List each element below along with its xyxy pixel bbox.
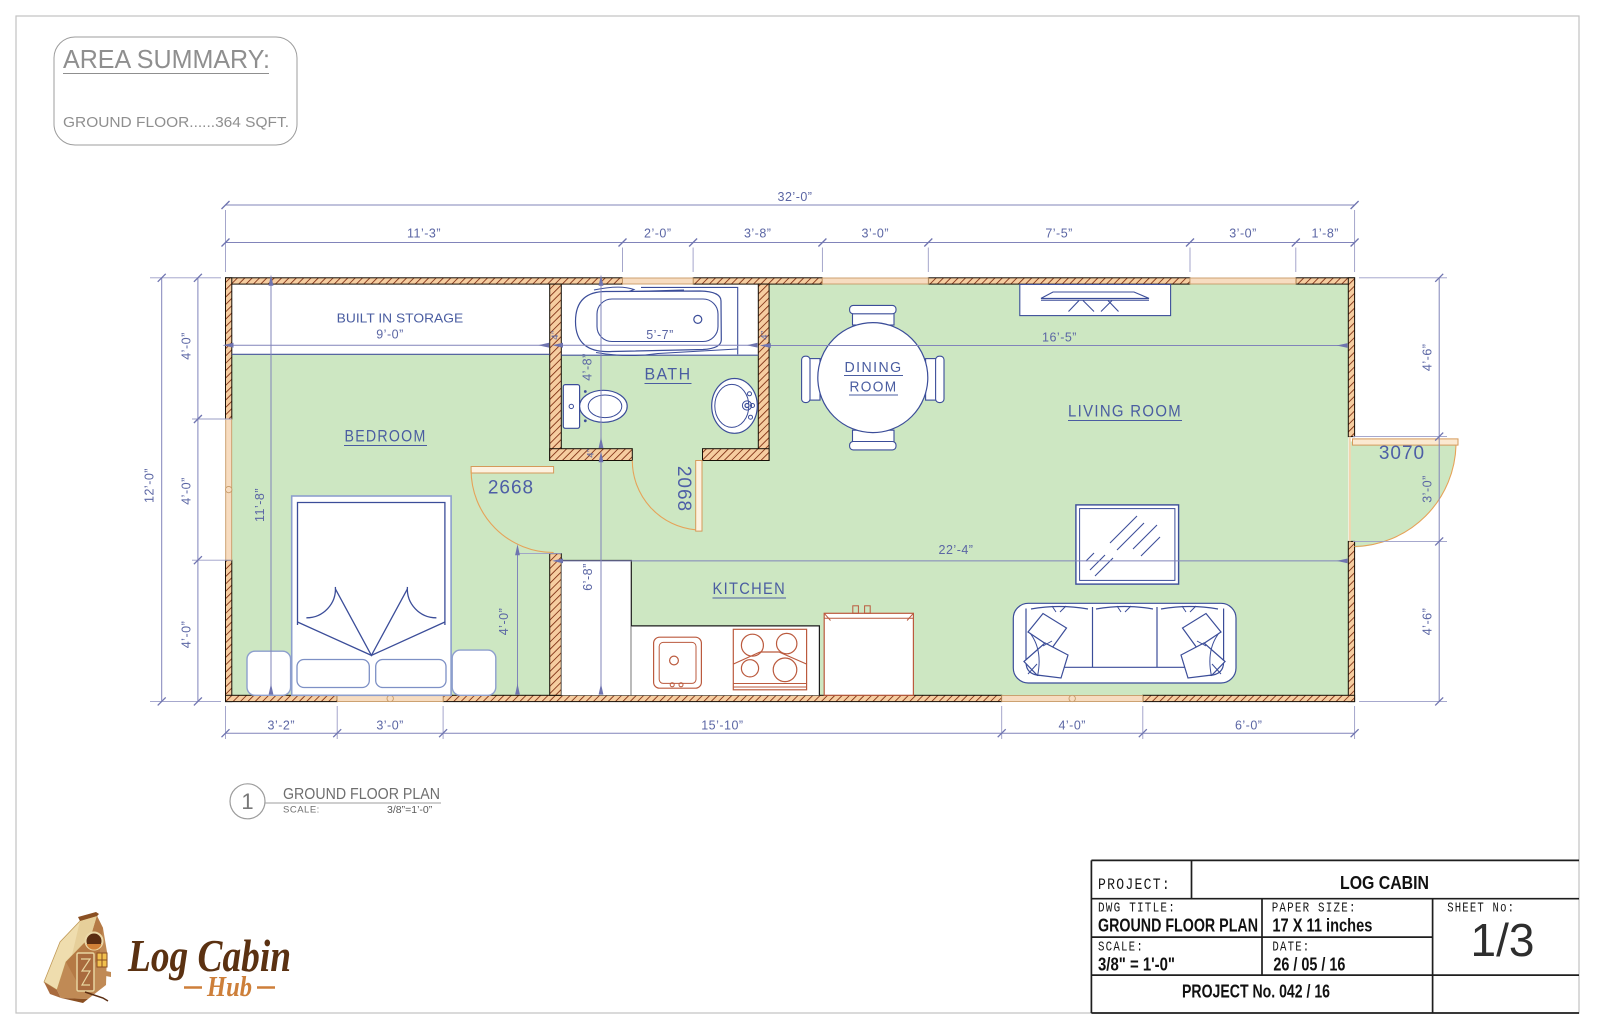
svg-text:3070: 3070 bbox=[1379, 443, 1425, 464]
svg-text:1/3: 1/3 bbox=[1471, 914, 1535, 966]
svg-text:7’-5”: 7’-5” bbox=[1045, 227, 1073, 241]
svg-text:3’-0”: 3’-0” bbox=[1421, 475, 1435, 503]
svg-text:3’-0”: 3’-0” bbox=[862, 227, 890, 241]
svg-text:22’-4”: 22’-4” bbox=[939, 543, 974, 557]
svg-text:4’-0”: 4’-0” bbox=[180, 621, 194, 649]
svg-text:2068: 2068 bbox=[673, 466, 694, 512]
svg-text:KITCHEN: KITCHEN bbox=[713, 579, 787, 598]
svg-text:3/8" = 1'-0": 3/8" = 1'-0" bbox=[1098, 954, 1175, 975]
svg-text:5’-7”: 5’-7” bbox=[646, 328, 674, 342]
svg-text:BATH: BATH bbox=[645, 365, 692, 384]
svg-text:26 / 05 / 16: 26 / 05 / 16 bbox=[1273, 954, 1345, 975]
svg-text:BUILT IN STORAGE: BUILT IN STORAGE bbox=[337, 311, 464, 326]
svg-text:4”: 4” bbox=[586, 448, 597, 457]
svg-text:GROUND FLOOR PLAN: GROUND FLOOR PLAN bbox=[283, 786, 440, 803]
svg-text:LOG CABIN: LOG CABIN bbox=[1340, 872, 1429, 893]
svg-text:1: 1 bbox=[241, 789, 253, 814]
svg-text:15’-10”: 15’-10” bbox=[701, 719, 743, 733]
svg-text:4”: 4” bbox=[550, 330, 561, 339]
svg-text:4”: 4” bbox=[760, 330, 771, 339]
svg-text:4’-6”: 4’-6” bbox=[1421, 608, 1435, 636]
svg-text:1’-8”: 1’-8” bbox=[1311, 227, 1339, 241]
svg-text:4’-0”: 4’-0” bbox=[1058, 719, 1086, 733]
svg-text:ROOM: ROOM bbox=[850, 379, 898, 396]
svg-text:3’-0”: 3’-0” bbox=[1229, 227, 1257, 241]
svg-text:SCALE:: SCALE: bbox=[283, 805, 320, 816]
svg-text:3/8”=1’-0”: 3/8”=1’-0” bbox=[387, 804, 433, 816]
svg-text:PROJECT No. 042 / 16: PROJECT No. 042 / 16 bbox=[1182, 981, 1330, 1002]
svg-text:4’-0”: 4’-0” bbox=[180, 332, 194, 360]
svg-text:16’-5”: 16’-5” bbox=[1042, 331, 1077, 345]
svg-text:2’-0”: 2’-0” bbox=[644, 227, 672, 241]
svg-text:9’-0”: 9’-0” bbox=[376, 328, 404, 342]
svg-text:2668: 2668 bbox=[488, 478, 534, 499]
svg-text:11’-3”: 11’-3” bbox=[407, 227, 441, 241]
svg-text:6’-0”: 6’-0” bbox=[1235, 719, 1263, 733]
svg-text:4’-0”: 4’-0” bbox=[180, 477, 194, 505]
svg-text:12’-0”: 12’-0” bbox=[143, 468, 157, 503]
svg-text:4’-6”: 4’-6” bbox=[1421, 344, 1435, 372]
svg-text:32’-0”: 32’-0” bbox=[778, 190, 813, 204]
svg-text:PROJECT:: PROJECT: bbox=[1098, 876, 1171, 894]
svg-text:DINING: DINING bbox=[845, 359, 903, 376]
svg-text:GROUND FLOOR......364 SQFT.: GROUND FLOOR......364 SQFT. bbox=[63, 114, 289, 131]
svg-text:LIVING ROOM: LIVING ROOM bbox=[1068, 402, 1182, 421]
svg-text:BEDROOM: BEDROOM bbox=[345, 427, 427, 446]
svg-text:4’-0”: 4’-0” bbox=[497, 608, 511, 636]
svg-text:GROUND FLOOR PLAN: GROUND FLOOR PLAN bbox=[1098, 915, 1258, 936]
svg-text:17 X 11 inches: 17 X 11 inches bbox=[1272, 915, 1372, 936]
svg-text:AREA SUMMARY:: AREA SUMMARY: bbox=[63, 44, 270, 74]
svg-text:3’-2”: 3’-2” bbox=[268, 719, 296, 733]
svg-text:6’-8”: 6’-8” bbox=[581, 563, 595, 591]
svg-text:4’-8”: 4’-8” bbox=[581, 353, 595, 381]
svg-text:11’-8”: 11’-8” bbox=[253, 488, 267, 522]
svg-text:3’-8”: 3’-8” bbox=[744, 227, 772, 241]
svg-text:3’-0”: 3’-0” bbox=[376, 719, 404, 733]
svg-text:Hub: Hub bbox=[206, 972, 252, 1003]
